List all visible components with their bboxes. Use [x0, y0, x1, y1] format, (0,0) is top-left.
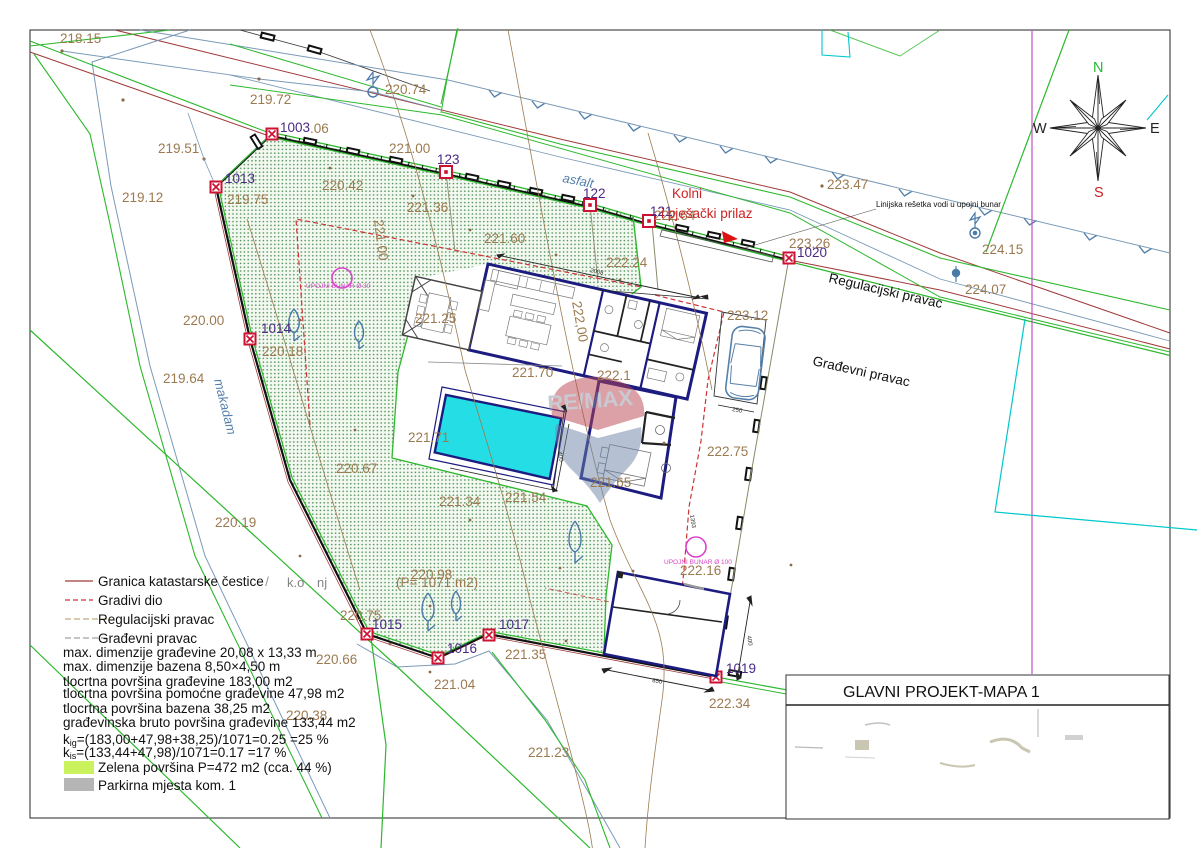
svg-text:1393: 1393 [688, 514, 696, 529]
svg-text:Regulacijski pravac: Regulacijski pravac [98, 612, 215, 627]
svg-text:220.42: 220.42 [322, 178, 363, 193]
svg-text:223.12: 223.12 [727, 308, 768, 323]
svg-text:W: W [1033, 121, 1047, 137]
svg-text:Granica katastarske čestice: Granica katastarske čestice [98, 574, 264, 589]
svg-text:S: S [1094, 185, 1104, 201]
svg-text:Gradivi dio: Gradivi dio [98, 593, 163, 608]
svg-text:Kolni: Kolni [672, 186, 702, 201]
svg-text:i pješački prilaz: i pješački prilaz [661, 206, 753, 221]
svg-text:(P= 1071 m2): (P= 1071 m2) [396, 575, 478, 590]
svg-text:220.67: 220.67 [336, 461, 377, 476]
svg-text:221.65: 221.65 [590, 475, 631, 490]
svg-text:850: 850 [652, 678, 664, 686]
svg-text:tlocrtna površina bazena 38,25: tlocrtna površina bazena 38,25 m2 [63, 701, 270, 716]
svg-text:219.72: 219.72 [250, 92, 291, 107]
svg-text:Regulacijski pravac: Regulacijski pravac [827, 270, 944, 311]
svg-text:220.74: 220.74 [385, 82, 427, 97]
svg-text:N: N [1093, 60, 1103, 76]
svg-text:asfalt: asfalt [561, 170, 596, 191]
svg-text:221.36: 221.36 [407, 200, 448, 215]
svg-text:219.64: 219.64 [163, 371, 205, 386]
svg-text:1017: 1017 [499, 617, 529, 632]
svg-text:1014: 1014 [261, 321, 292, 336]
svg-text:221.54: 221.54 [505, 490, 547, 505]
svg-text:E: E [1150, 121, 1160, 137]
svg-text:218.15: 218.15 [60, 31, 101, 46]
svg-text:1003: 1003 [280, 120, 310, 135]
svg-text:građevinska bruto površina gra: građevinska bruto površina građevine 133… [63, 715, 356, 730]
svg-text:224.07: 224.07 [965, 282, 1006, 297]
svg-text:Linijska rešetka vodi u upojni: Linijska rešetka vodi u upojni bunar [876, 200, 1001, 209]
svg-text:222.16: 222.16 [680, 563, 721, 578]
svg-text:219.12: 219.12 [122, 190, 163, 205]
svg-text:k.o: k.o [287, 575, 304, 590]
svg-text:222.1: 222.1 [597, 368, 631, 383]
svg-text:400: 400 [745, 635, 753, 647]
svg-text:1019: 1019 [726, 661, 756, 676]
svg-text:UPOJNI BUNAR Ø 30: UPOJNI BUNAR Ø 30 [306, 283, 371, 290]
svg-text:max. dimenzije građevine 20,08: max. dimenzije građevine 20,08 x 13,33 m [63, 645, 317, 660]
svg-text:221.71: 221.71 [408, 430, 449, 445]
svg-text:.06: .06 [310, 121, 329, 136]
svg-text:222.34: 222.34 [709, 696, 751, 711]
svg-text:nj: nj [317, 575, 327, 590]
svg-text:219.51: 219.51 [158, 141, 199, 156]
svg-text:kis=(133,44+47,98)/1071=0.17 =: kis=(133,44+47,98)/1071=0.17 =17 % [63, 745, 286, 761]
svg-text:1016: 1016 [447, 641, 477, 656]
svg-text:GLAVNI PROJEKT-MAPA 1: GLAVNI PROJEKT-MAPA 1 [843, 684, 1040, 701]
svg-text:221.34: 221.34 [439, 494, 481, 509]
svg-text:max. dimenzije bazena 8,50×4,5: max. dimenzije bazena 8,50×4,50 m [63, 659, 280, 674]
svg-text:makadam: makadam [211, 377, 239, 436]
svg-text:224.15: 224.15 [982, 242, 1023, 257]
svg-text:1013: 1013 [225, 171, 255, 186]
svg-text:221.25: 221.25 [415, 311, 456, 326]
svg-text:223.47: 223.47 [827, 177, 868, 192]
svg-text:220.19: 220.19 [215, 515, 256, 530]
svg-text:250: 250 [732, 407, 744, 415]
svg-text:221.23: 221.23 [528, 745, 569, 760]
svg-text:123: 123 [437, 152, 460, 167]
svg-text:221.35: 221.35 [505, 647, 546, 662]
svg-text:Parkirna mjesta kom. 1: Parkirna mjesta kom. 1 [98, 778, 236, 793]
svg-text:222.75: 222.75 [707, 444, 748, 459]
svg-text:1015: 1015 [372, 617, 402, 632]
svg-text:221.60: 221.60 [484, 231, 525, 246]
svg-text:Građevni pravac: Građevni pravac [811, 353, 911, 389]
svg-text:220.00: 220.00 [183, 313, 224, 328]
svg-text:220.18: 220.18 [262, 344, 303, 359]
svg-text:219.75: 219.75 [227, 192, 268, 207]
svg-text:220.66: 220.66 [316, 652, 357, 667]
svg-text:1020: 1020 [797, 245, 827, 260]
svg-text:Zelena površina P=472 m2 (cca.: Zelena površina P=472 m2 (cca. 44 %) [98, 760, 332, 775]
svg-text:221.70: 221.70 [512, 365, 553, 380]
svg-text:221.04: 221.04 [434, 677, 476, 692]
svg-text:Građevni pravac: Građevni pravac [98, 631, 197, 646]
svg-text:222.24: 222.24 [606, 255, 648, 270]
svg-text:221.00: 221.00 [389, 141, 430, 156]
svg-text:tlocrtna površina pomoćne građ: tlocrtna površina pomoćne građevine 47,9… [63, 686, 344, 701]
